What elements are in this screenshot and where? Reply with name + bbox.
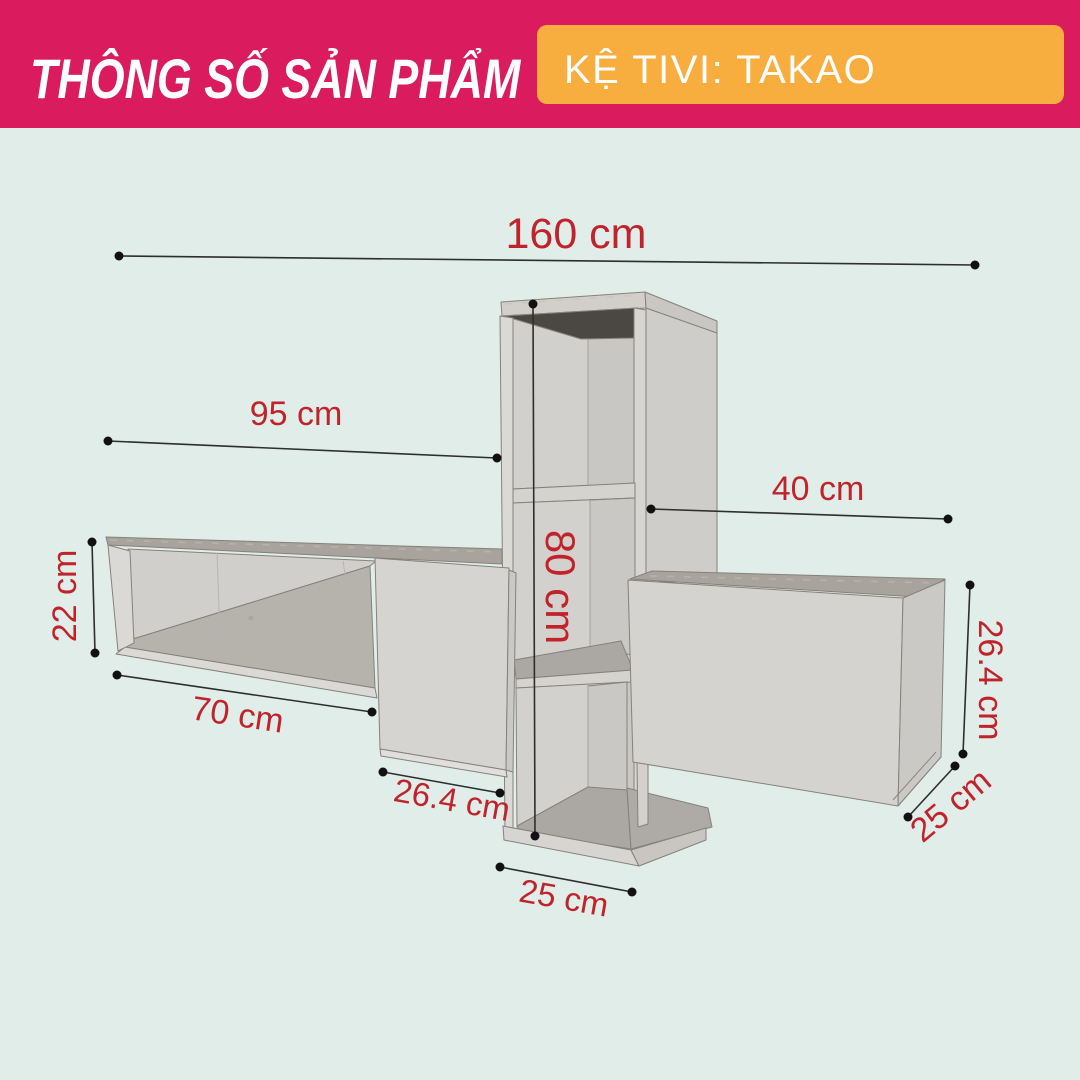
svg-text:22 cm: 22 cm (46, 550, 84, 643)
svg-text:95 cm: 95 cm (250, 395, 343, 433)
svg-text:25 cm: 25 cm (517, 872, 612, 924)
svg-text:26.4 cm: 26.4 cm (391, 771, 513, 828)
svg-text:40 cm: 40 cm (772, 470, 865, 508)
svg-text:160 cm: 160 cm (505, 210, 646, 258)
svg-text:26.4 cm: 26.4 cm (971, 620, 1009, 741)
svg-text:80 cm: 80 cm (537, 530, 584, 644)
